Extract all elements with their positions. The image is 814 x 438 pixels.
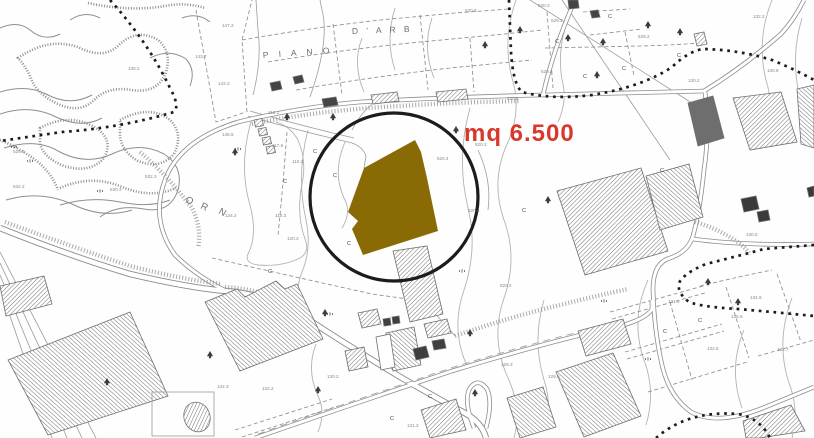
- crop-mark: C: [522, 208, 526, 214]
- elevation-label: 120.3: [287, 236, 299, 241]
- cadastral-map-screenshot: 529.2529.2520.3520.8520.8529.2132.2130.8…: [0, 0, 814, 438]
- elevation-label: 134.2: [225, 213, 237, 218]
- building: [432, 339, 446, 350]
- elevation-label: 130.2: [327, 374, 339, 379]
- elevation-label: 520.8: [507, 96, 519, 101]
- greenhouse: [254, 119, 264, 128]
- crop-mark: C: [390, 416, 394, 422]
- elevation-label: 117.6: [272, 143, 284, 148]
- crop-mark: C: [583, 74, 587, 80]
- elevation-label: 520.4: [468, 208, 480, 213]
- crop-mark: C: [608, 14, 612, 20]
- elevation-label: 129.6: [548, 374, 560, 379]
- crop-mark: C: [268, 269, 272, 275]
- crop-mark: C: [622, 66, 626, 72]
- building: [757, 210, 770, 222]
- building: [345, 347, 368, 371]
- crop-mark: C: [283, 179, 287, 185]
- elevation-label: 130.6: [746, 232, 758, 237]
- elevation-label: 142.2: [218, 81, 230, 86]
- place-name: D ' A R B: [352, 24, 413, 36]
- crop-mark: C: [347, 241, 351, 247]
- elevation-label: 530.3: [110, 187, 122, 192]
- area-annotation: mq 6.500: [464, 120, 575, 148]
- building: [322, 97, 338, 107]
- building: [590, 10, 600, 18]
- elevation-label: 131.2: [407, 423, 419, 428]
- elevation-label: 129.3: [501, 362, 513, 367]
- elevation-label: 143.7: [195, 54, 207, 59]
- elevation-label: 132.6: [707, 346, 719, 351]
- elevation-label: 134.6: [750, 295, 762, 300]
- crop-mark: C: [660, 168, 664, 174]
- elevation-label: 118.2: [268, 110, 280, 115]
- elevation-label: 132.2: [262, 386, 274, 391]
- crop-mark: C: [698, 318, 702, 324]
- crop-mark: C: [313, 149, 317, 155]
- elevation-label: 520.4: [437, 156, 449, 161]
- elevation-label: 110.3: [275, 213, 287, 218]
- elevation-label: 528.3: [13, 149, 25, 154]
- elevation-label: 520.8: [465, 8, 477, 13]
- building: [568, 0, 579, 9]
- elevation-label: 145.5: [222, 132, 234, 137]
- crop-mark: C: [333, 173, 337, 179]
- elevation-label: 132.2: [753, 14, 765, 19]
- elevation-label: 132.7: [777, 347, 789, 352]
- elevation-label: 532.2: [13, 184, 25, 189]
- elevation-label: 529.2: [541, 69, 553, 74]
- elevation-label: 529.2: [551, 18, 563, 23]
- building: [383, 318, 391, 326]
- elevation-label: 135.2: [128, 66, 140, 71]
- elevation-label: 131.5: [668, 299, 680, 304]
- elevation-label: 110.2: [292, 159, 304, 164]
- elevation-label: 130.2: [688, 78, 700, 83]
- elevation-label: 135.6: [731, 314, 743, 319]
- elevation-label: 147.2: [222, 23, 234, 28]
- elevation-label: 520.3: [538, 3, 550, 8]
- crop-mark: C: [555, 39, 559, 45]
- greenhouse: [262, 137, 272, 146]
- elevation-label: 529.2: [638, 34, 650, 39]
- building: [741, 196, 759, 212]
- crop-mark: C: [663, 329, 667, 335]
- greenhouse: [258, 128, 268, 137]
- elevation-label: 132.3: [217, 384, 229, 389]
- building: [392, 316, 400, 324]
- cadastral-map: 529.2529.2520.3520.8520.8529.2132.2130.8…: [0, 0, 814, 438]
- building: [270, 81, 282, 91]
- elevation-label: 130.8: [767, 68, 779, 73]
- elevation-label: 520.2: [500, 283, 512, 288]
- crop-mark: C: [428, 394, 432, 400]
- building: [293, 75, 304, 84]
- crop-mark: C: [677, 53, 681, 59]
- building: [413, 346, 429, 360]
- elevation-label: 532.3: [145, 174, 157, 179]
